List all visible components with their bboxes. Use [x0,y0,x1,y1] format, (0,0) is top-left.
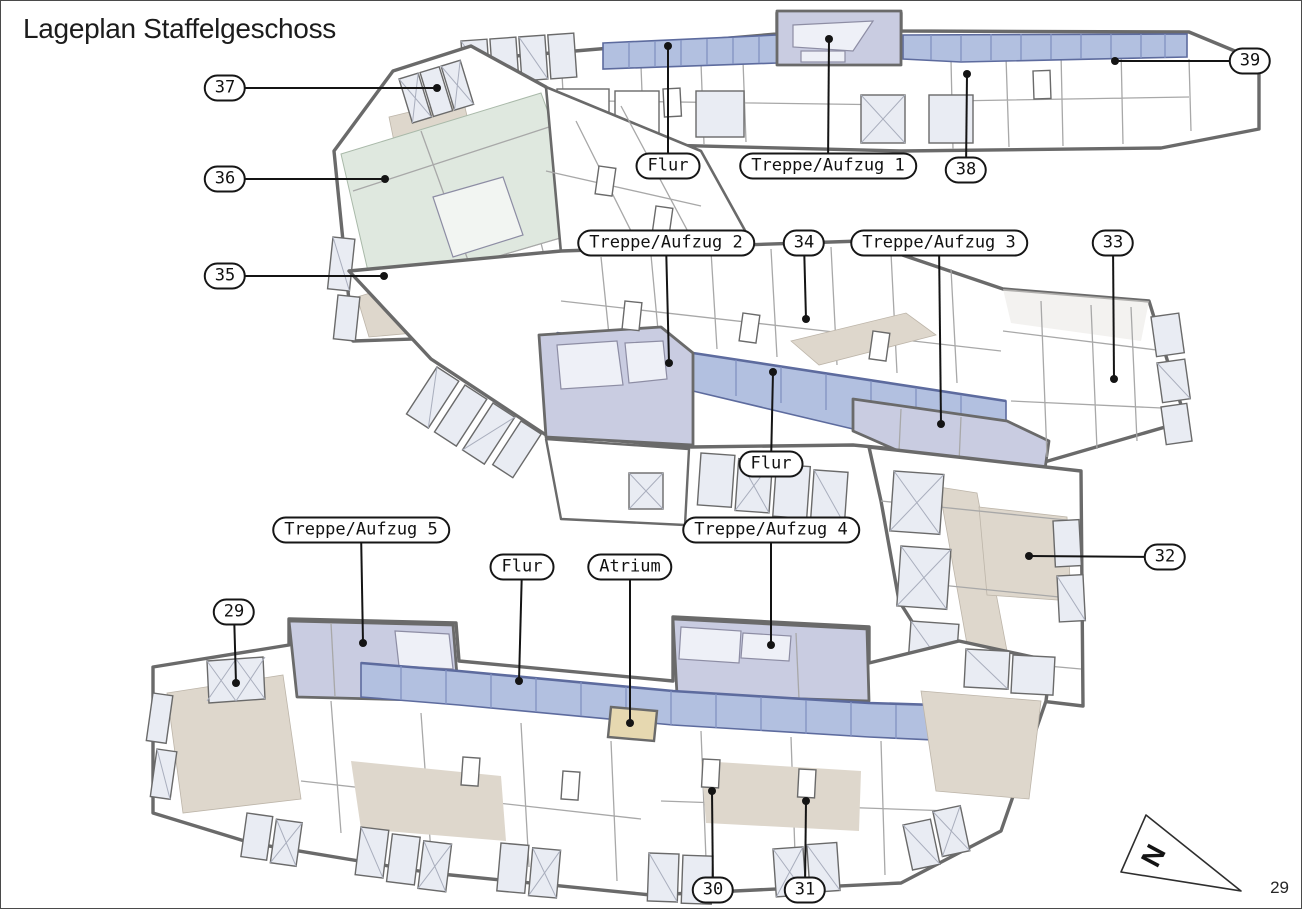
callout-corridor-south: Flur [490,554,555,581]
leader-dot-unit-35 [380,272,388,280]
leader-dot-stair-3 [937,420,945,428]
leader-line-unit-30 [712,791,713,890]
callout-stair-5: Treppe/Aufzug 5 [272,517,450,544]
leader-dot-stair-1 [825,35,833,43]
callout-unit-38: 38 [945,157,987,184]
leader-dot-unit-38 [963,70,971,78]
page-number: 29 [1270,878,1289,898]
stair-core-1 [777,11,901,65]
plan-page: N Lageplan Staffelgeschoss 29 373635Flur… [0,0,1302,909]
page-title: Lageplan Staffelgeschoss [23,13,336,45]
callout-unit-33: 33 [1092,230,1134,257]
leader-line-unit-33 [1113,243,1114,379]
callout-stair-2: Treppe/Aufzug 2 [577,230,755,257]
leader-dot-unit-30 [708,787,716,795]
callout-atrium: Atrium [587,554,672,581]
wing-south [146,617,1055,904]
leader-dot-unit-36 [381,175,389,183]
leader-dot-unit-37 [433,84,441,92]
callout-stair-3: Treppe/Aufzug 3 [850,230,1028,257]
callout-unit-30: 30 [692,877,734,904]
corridor-north-east [903,34,1187,62]
leader-line-corridor-south [519,567,522,681]
leader-dot-stair-4 [767,641,775,649]
callout-unit-37: 37 [204,75,246,102]
callout-unit-29: 29 [213,599,255,626]
callout-unit-39: 39 [1229,48,1271,75]
callout-unit-34: 34 [783,230,825,257]
leader-line-stair-1 [828,39,829,166]
leader-dot-stair-2 [665,359,673,367]
callout-corridor-top: Flur [636,153,701,180]
leader-dot-corridor-mid [769,368,777,376]
callout-stair-4: Treppe/Aufzug 4 [682,517,860,544]
floorplan-drawing: N [1,1,1301,908]
leader-dot-unit-34 [802,315,810,323]
leader-dot-unit-31 [802,797,810,805]
stair-core-2 [539,327,693,445]
callout-unit-36: 36 [204,166,246,193]
leader-dot-atrium [626,719,634,727]
callout-stair-1: Treppe/Aufzug 1 [739,153,917,180]
callout-unit-31: 31 [784,877,826,904]
leader-dot-unit-29 [232,679,240,687]
callout-unit-32: 32 [1144,544,1186,571]
leader-dot-corridor-top [664,42,672,50]
leader-dot-unit-32 [1025,552,1033,560]
leader-dot-unit-39 [1111,57,1119,65]
callout-unit-35: 35 [204,263,246,290]
callout-corridor-mid: Flur [739,451,804,478]
north-arrow: N [1121,815,1241,891]
leader-dot-corridor-south [515,677,523,685]
leader-dot-stair-5 [359,639,367,647]
leader-dot-unit-33 [1110,375,1118,383]
